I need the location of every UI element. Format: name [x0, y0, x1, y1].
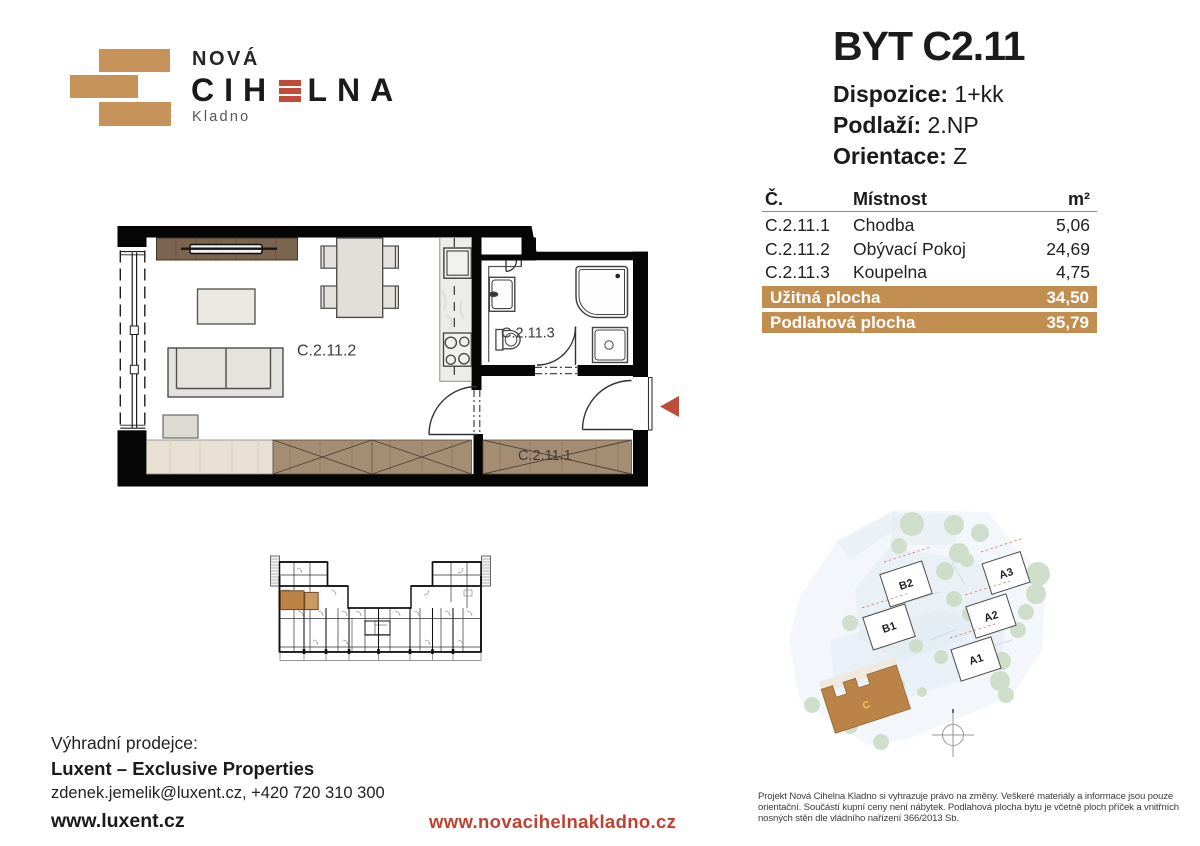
svg-text:C.2.11.2: C.2.11.2	[297, 343, 356, 360]
svg-text:C.2.11.3: C.2.11.3	[501, 326, 555, 342]
svg-text:C.2.11.1: C.2.11.1	[518, 448, 572, 464]
